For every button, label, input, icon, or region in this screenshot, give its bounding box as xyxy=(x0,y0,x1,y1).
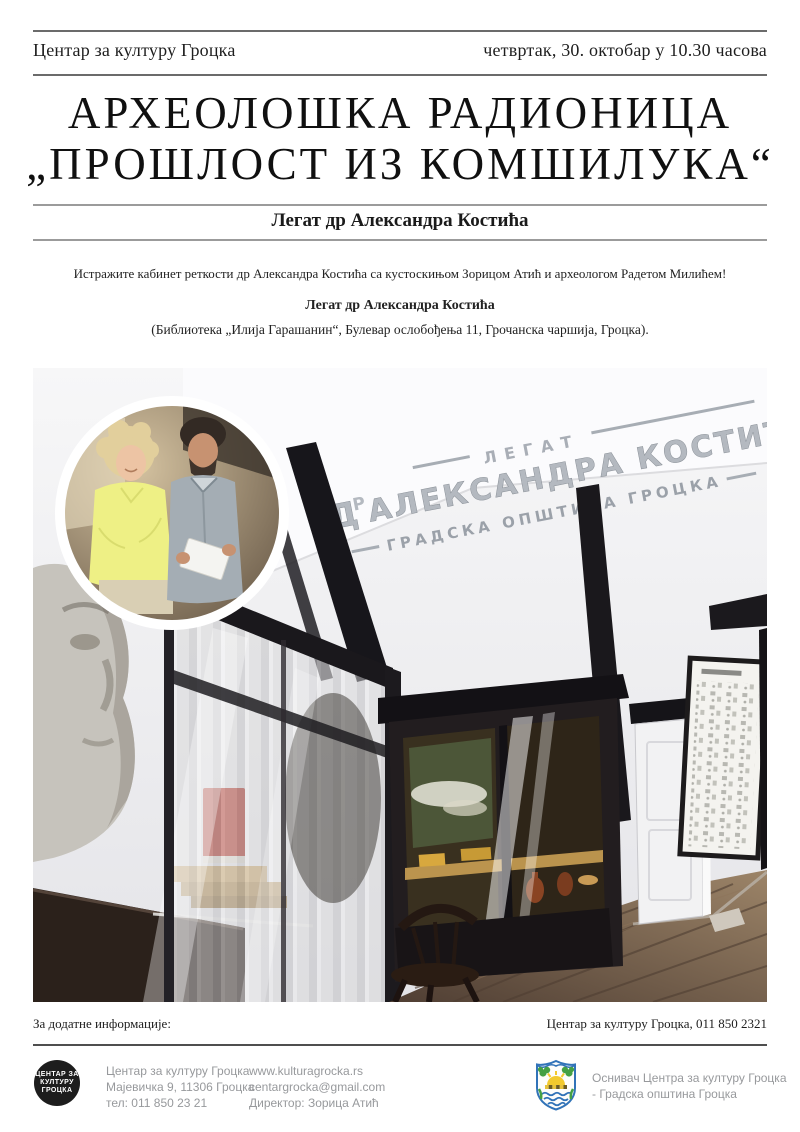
founder-line: - Градска општина Гроцка xyxy=(592,1086,787,1102)
info-row: За додатне информације: Центар за култур… xyxy=(33,1016,767,1032)
culture-center-logo: ЦЕНТАР ЗА КУЛТУРУ ГРОЦКА xyxy=(34,1060,80,1106)
logo-line: ЦЕНТАР ЗА xyxy=(35,1071,78,1079)
coat-of-arms-icon xyxy=(533,1058,579,1112)
subtitle-rule-top xyxy=(33,204,767,206)
footer-rule xyxy=(33,1044,767,1046)
subtitle-text: Легат др Александра Костића xyxy=(0,210,800,232)
logo-line: ГРОЦКА xyxy=(42,1087,73,1095)
founder-line: Оснивач Центра за културу Гроцка xyxy=(592,1070,787,1086)
archaeology-poster-frame xyxy=(680,658,767,858)
poster: Центар за културу Гроцка четвртак, 30. о… xyxy=(0,0,800,1132)
museum-photo: ЛЕГАТ Д Р АЛЕКСАНДРА КОСТИЋ ГРАДСКА ОПШТ… xyxy=(33,368,767,1002)
contact-line: Директор: Зорица Атић xyxy=(249,1095,385,1111)
subtitle-rule-bottom xyxy=(33,239,767,241)
intro-legacy: Легат др Александра Костића xyxy=(33,298,767,314)
header-org: Центар за културу Гроцка xyxy=(33,40,236,61)
header-datetime: четвртак, 30. октобар у 10.30 часова xyxy=(483,40,767,61)
info-label: За додатне информације: xyxy=(33,1016,171,1032)
footer-contacts: www.kulturagrocka.rs centargrocka@gmail.… xyxy=(249,1063,385,1111)
footer-founder: Оснивач Центра за културу Гроцка - Градс… xyxy=(592,1070,787,1102)
page-title: АРХЕОЛОШКА РАДИОНИЦА „ПРОШЛОСТ ИЗ КОМШИЛ… xyxy=(0,88,800,190)
footer: ЦЕНТАР ЗА КУЛТУРУ ГРОЦКА Центар за култу… xyxy=(0,1056,800,1126)
contact-line: centargrocka@gmail.com xyxy=(249,1079,385,1095)
title-line2: „ПРОШЛОСТ ИЗ КОМШИЛУКА“ xyxy=(0,139,800,190)
title-line1: АРХЕОЛОШКА РАДИОНИЦА xyxy=(0,88,800,139)
info-contact: Центар за културу Гроцка, 011 850 2321 xyxy=(547,1016,767,1032)
header-rule-bottom xyxy=(33,74,767,76)
address-line: тел: 011 850 23 21 xyxy=(106,1095,254,1111)
intro-location: (Библиотека „Илија Гарашанин“, Булевар о… xyxy=(33,322,767,338)
municipality-arms xyxy=(533,1058,579,1116)
logo-line: КУЛТУРУ xyxy=(40,1079,74,1087)
footer-address: Центар за културу Гроцка Мајевичка 9, 11… xyxy=(106,1063,254,1111)
contact-line: www.kulturagrocka.rs xyxy=(249,1063,385,1079)
intro-invite: Истражите кабинет реткости др Александра… xyxy=(33,266,767,282)
address-line: Мајевичка 9, 11306 Гроцка xyxy=(106,1079,254,1095)
header-row: Центар за културу Гроцка четвртак, 30. о… xyxy=(33,40,767,61)
address-line: Центар за културу Гроцка xyxy=(106,1063,254,1079)
header-rule-top xyxy=(33,30,767,32)
